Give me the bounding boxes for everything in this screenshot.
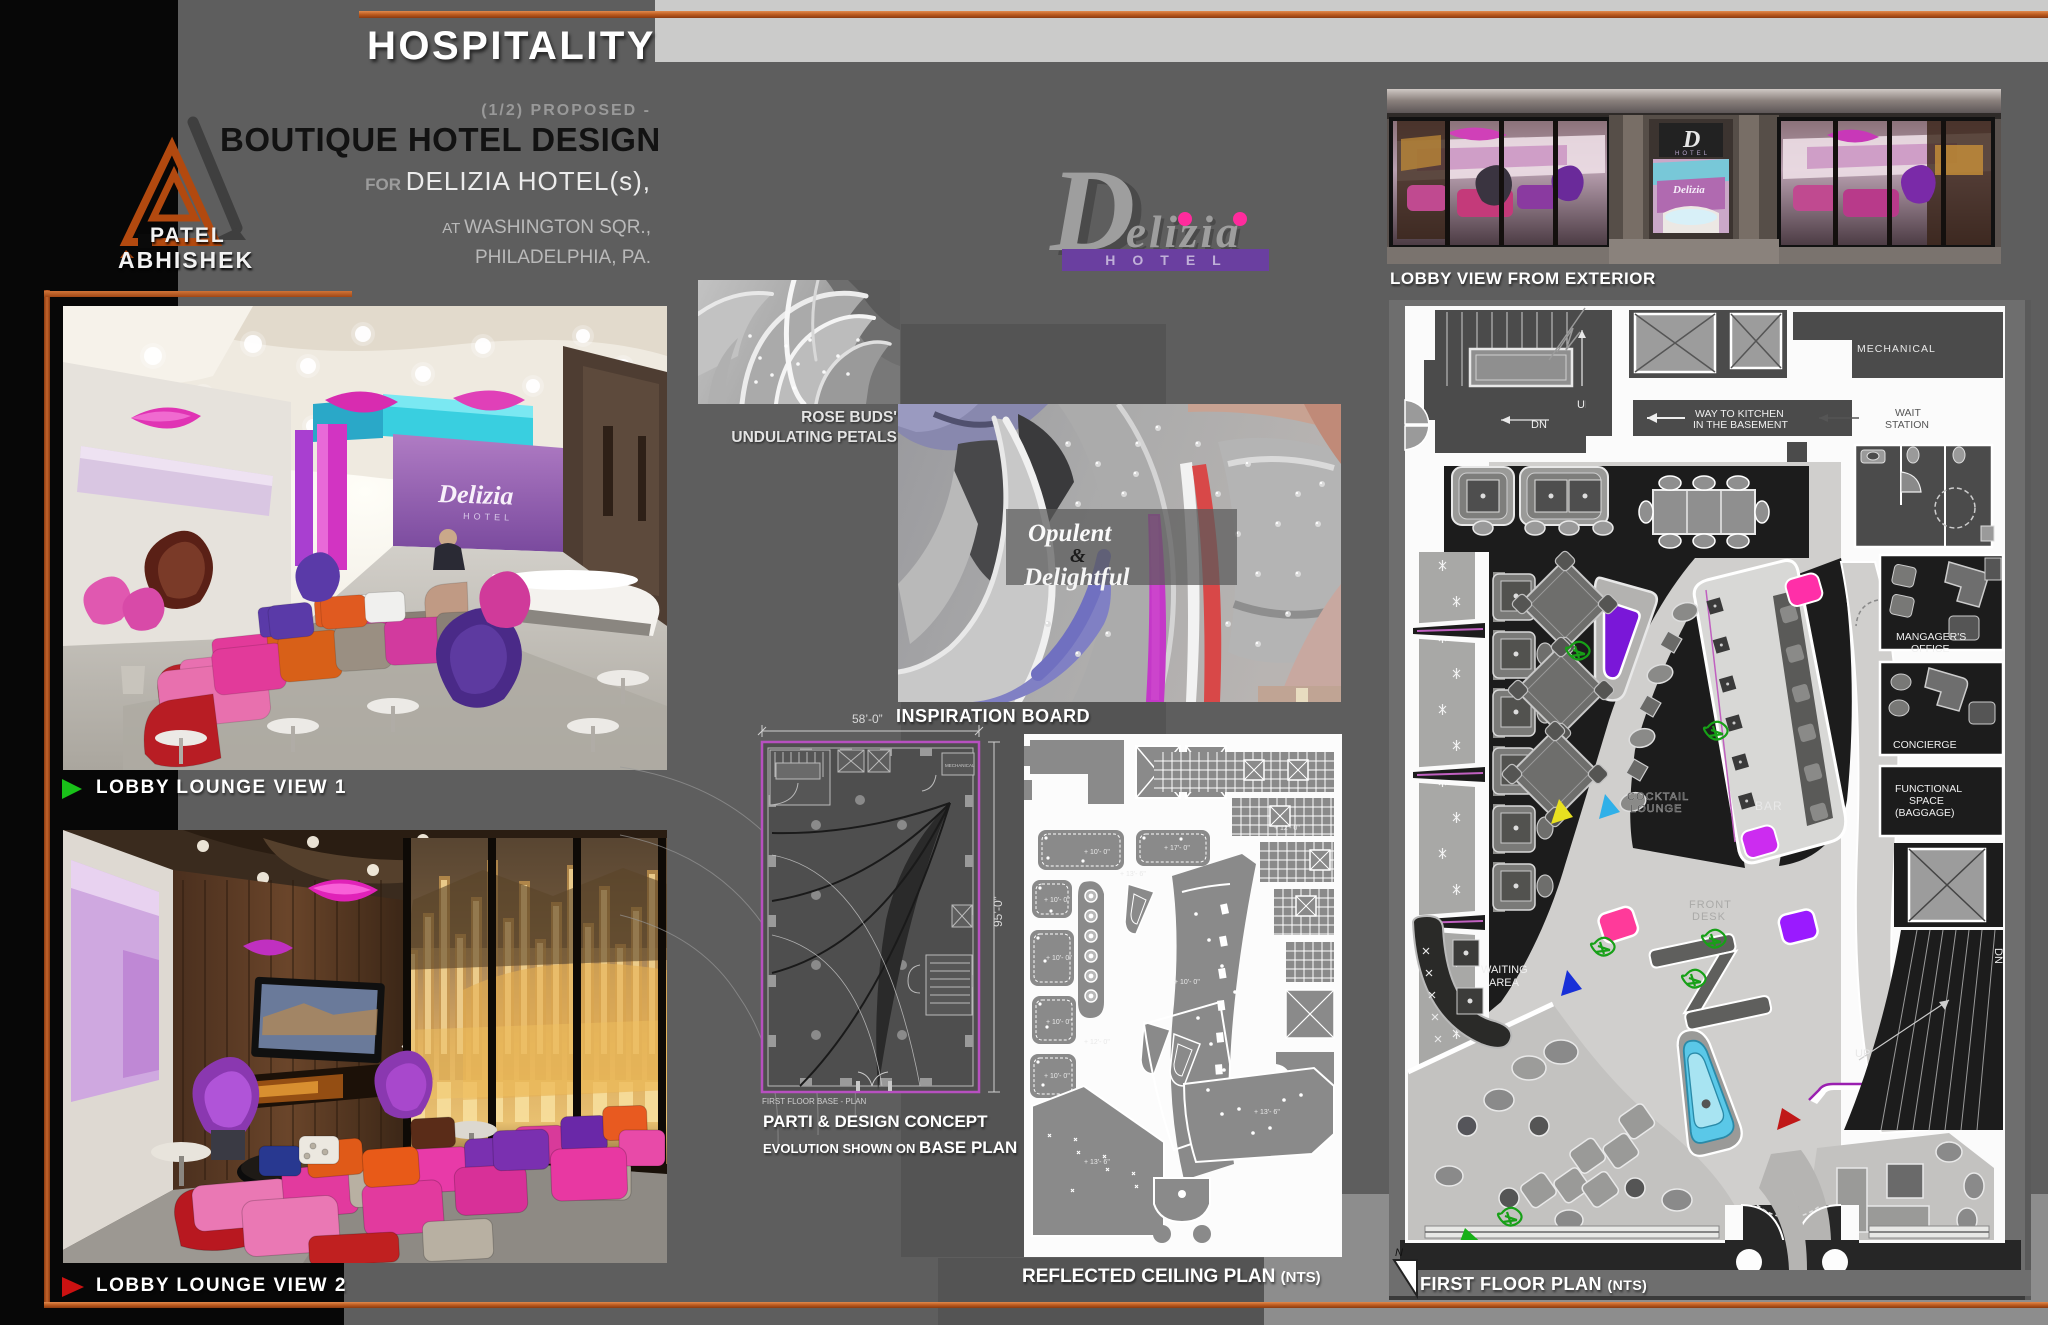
svg-text:MECHANICAL: MECHANICAL: [945, 763, 975, 768]
svg-text:HOTEL: HOTEL: [463, 511, 513, 523]
svg-text:+ 13'- 6": + 13'- 6": [1084, 1159, 1110, 1166]
svg-text:SPACE: SPACE: [1909, 795, 1944, 807]
svg-text:+ 10'- 0": + 10'- 0": [1046, 1019, 1072, 1026]
svg-text:IN THE BASEMENT: IN THE BASEMENT: [1693, 419, 1788, 431]
svg-text:+ 10'- 0": + 10'- 0": [1046, 955, 1072, 962]
svg-text:Opulent: Opulent: [1028, 520, 1112, 547]
svg-text:BAR: BAR: [1755, 799, 1783, 813]
svg-text:+ 10'- 0": + 10'- 0": [1174, 979, 1200, 986]
svg-text:Delightful: Delightful: [1023, 564, 1130, 591]
svg-text:AREA: AREA: [1489, 977, 1520, 989]
svg-text:+ 10'- 0": + 10'- 0": [1084, 849, 1110, 856]
svg-text:FRONT: FRONT: [1689, 899, 1732, 911]
svg-text:STATION: STATION: [1885, 419, 1929, 431]
svg-text:OFFICE: OFFICE: [1911, 643, 1950, 655]
svg-text:58’-0”: 58’-0”: [852, 712, 883, 726]
svg-text:Delizia: Delizia: [437, 479, 514, 511]
svg-text:DN: DN: [1531, 419, 1547, 431]
svg-text:95’-0”: 95’-0”: [991, 896, 1005, 927]
svg-text:+ 10'- 0": + 10'- 0": [1044, 1073, 1070, 1080]
svg-text:+ 13'- 6": + 13'- 6": [1120, 871, 1146, 878]
svg-text:N: N: [1395, 1247, 1403, 1259]
svg-text:(BAGGAGE): (BAGGAGE): [1895, 807, 1955, 819]
svg-text:+ 17'- 0": + 17'- 0": [1164, 845, 1190, 852]
svg-text:WAITING: WAITING: [1481, 964, 1528, 976]
svg-text:DN: DN: [1992, 948, 2004, 964]
svg-text:D: D: [1682, 127, 1700, 153]
svg-text:FIRST FLOOR BASE - PLAN: FIRST FLOOR BASE - PLAN: [762, 1097, 867, 1106]
svg-text:FUNCTIONAL: FUNCTIONAL: [1895, 783, 1962, 795]
svg-text:LOUNGE: LOUNGE: [1630, 803, 1682, 815]
svg-text:WAIT: WAIT: [1895, 407, 1921, 419]
svg-text:UP: UP: [1855, 1048, 1870, 1060]
svg-text:+ 12'- 0": + 12'- 0": [1274, 825, 1300, 832]
svg-text:Delizia: Delizia: [1672, 184, 1705, 196]
svg-text:+ 12'- 0": + 12'- 0": [1084, 1039, 1110, 1046]
svg-text:+ 10'- 0": + 10'- 0": [1044, 897, 1070, 904]
svg-text:CONCIERGE: CONCIERGE: [1893, 739, 1957, 751]
svg-text:MECHANICAL: MECHANICAL: [1857, 343, 1936, 355]
svg-text:HOTEL: HOTEL: [1675, 151, 1710, 157]
svg-text:+ 13'- 6": + 13'- 6": [1254, 1109, 1280, 1116]
svg-text:COCKTAIL: COCKTAIL: [1627, 791, 1689, 803]
svg-text:MANGAGER'S: MANGAGER'S: [1896, 631, 1966, 643]
svg-text:DESK: DESK: [1692, 911, 1726, 923]
